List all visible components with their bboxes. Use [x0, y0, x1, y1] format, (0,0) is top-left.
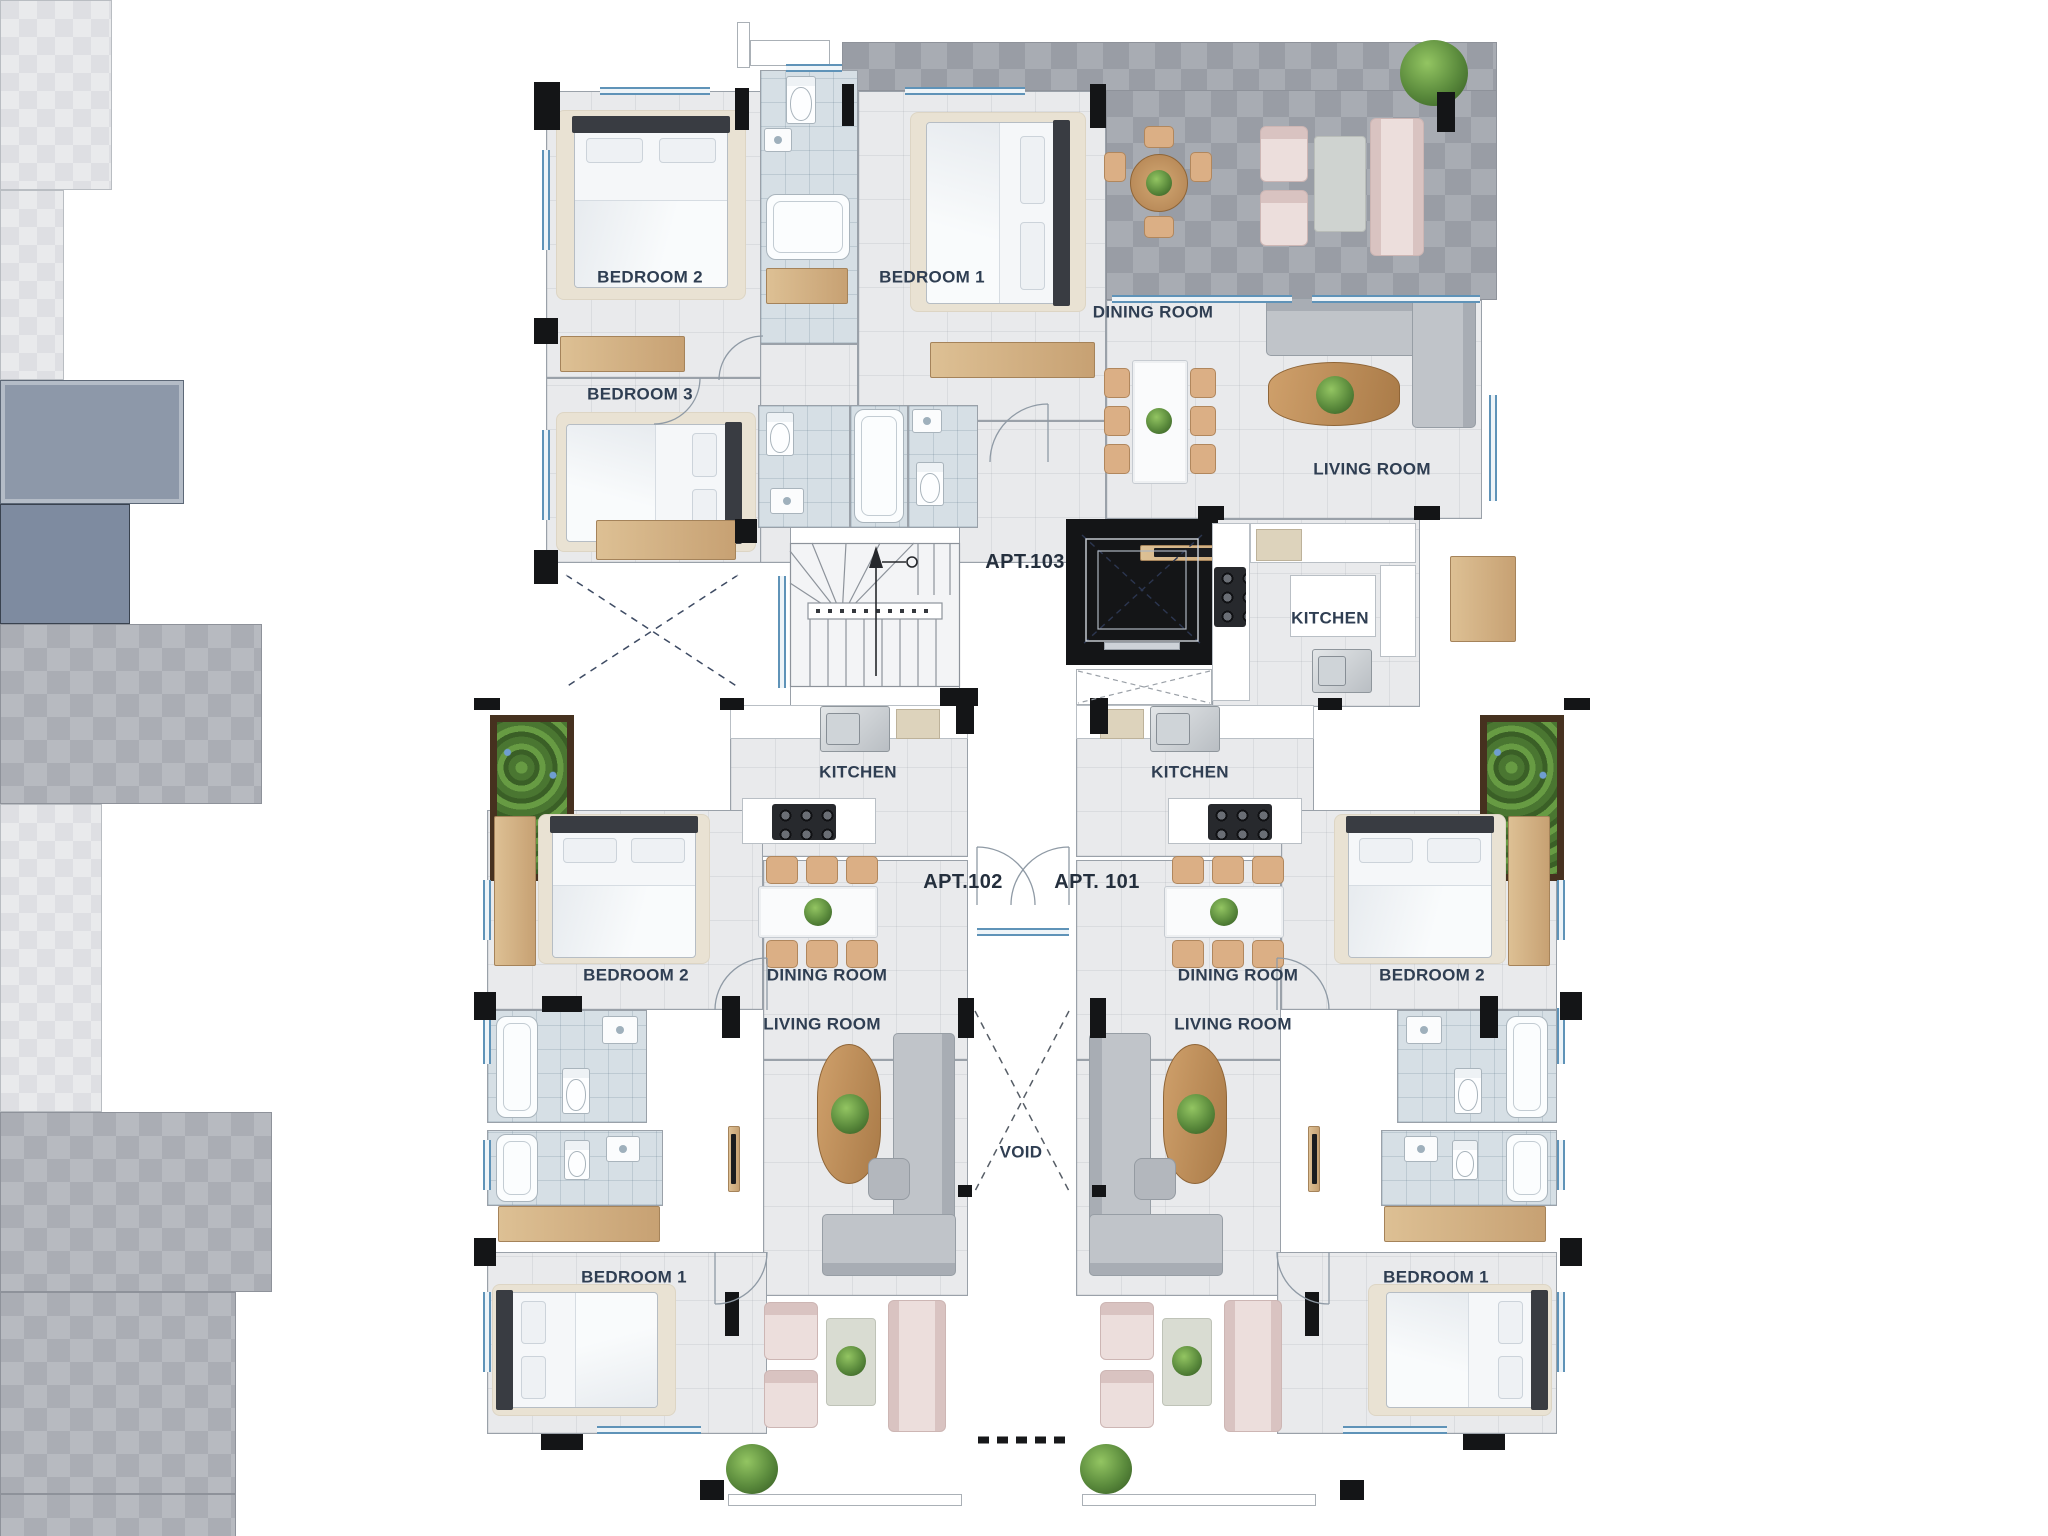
balcony-apt101	[0, 1494, 236, 1536]
wall-column	[700, 1480, 724, 1500]
label-bedroom1-apt103: BEDROOM 1	[879, 269, 985, 286]
pillow	[1498, 1356, 1523, 1399]
plant-icon	[1146, 170, 1172, 196]
wall-column	[534, 318, 558, 344]
wall-column	[1090, 998, 1106, 1038]
label-kitchen-apt103: KITCHEN	[1291, 610, 1369, 627]
label-living-apt101: LIVING ROOM	[1174, 1016, 1292, 1033]
dresser-bedroom2-apt103	[560, 336, 685, 372]
bush-icon	[726, 1444, 778, 1494]
wall-column	[1090, 84, 1106, 128]
label-unit-apt102: APT.102	[923, 872, 1003, 892]
pillow	[1498, 1301, 1523, 1344]
ottoman	[868, 1158, 910, 1200]
sink-icon	[770, 488, 804, 514]
wall-column	[720, 698, 744, 710]
plant-icon	[804, 898, 832, 926]
shelf-apt101	[1384, 1206, 1546, 1242]
kitchen-cabinet	[896, 709, 940, 739]
bush-icon	[1400, 40, 1468, 106]
floor-plan: BEDROOM 2 BEDROOM 1 BEDROOM 3 DINING ROO…	[0, 0, 2048, 1536]
wardrobe-bedroom2-apt102	[494, 816, 536, 966]
kitchen-counter	[1380, 565, 1416, 657]
dining-chair	[766, 940, 798, 968]
bed-duvet	[553, 885, 695, 957]
wall-column	[725, 1292, 739, 1336]
terrace-armchair	[1260, 190, 1308, 246]
pillow	[1020, 136, 1045, 204]
toilet-icon	[766, 412, 794, 456]
bed-headboard	[1346, 816, 1494, 833]
balcony-parapet-apt101	[1082, 1494, 1316, 1506]
label-bedroom2-apt103: BEDROOM 2	[597, 269, 703, 286]
wall-column	[1480, 996, 1498, 1038]
terrace-tiles-apt101	[0, 1112, 272, 1292]
balcony-armchair	[764, 1370, 818, 1428]
wall-column	[1437, 92, 1455, 132]
toilet-icon	[1454, 1068, 1482, 1114]
dining-chair	[1104, 444, 1130, 474]
pillow	[521, 1301, 546, 1344]
dining-chair	[806, 940, 838, 968]
dining-chair	[806, 856, 838, 884]
toilet-icon	[916, 462, 944, 506]
plant-icon	[1146, 408, 1172, 434]
ottoman	[1134, 1158, 1176, 1200]
terrace-armchair	[1260, 126, 1308, 182]
pillow	[586, 138, 644, 163]
toilet-icon	[562, 1068, 590, 1114]
window	[1557, 1140, 1565, 1190]
window	[1557, 1292, 1565, 1372]
elevator-door	[1104, 642, 1180, 650]
pillow	[659, 138, 717, 163]
window	[1312, 295, 1480, 303]
window	[542, 430, 550, 520]
sink-icon	[606, 1136, 640, 1162]
terrace-tiles-top-strip	[842, 42, 1497, 91]
wall-column	[958, 998, 974, 1038]
window	[778, 576, 786, 688]
toilet-icon	[786, 76, 816, 124]
terrace-sofa	[1370, 118, 1424, 256]
ledge-top	[750, 40, 830, 66]
plant-icon	[1172, 1346, 1202, 1376]
pillow	[1359, 838, 1413, 863]
sink-icon	[912, 409, 942, 433]
sofa-living-apt101	[1089, 1214, 1223, 1276]
ledge-top-left	[737, 22, 750, 68]
bed-headboard	[572, 116, 730, 133]
balcony-parapet-apt102	[728, 1494, 962, 1506]
bed-duvet	[1349, 885, 1491, 957]
double-bed-bedroom1-apt101	[1386, 1292, 1544, 1408]
kitchen-cabinet	[1256, 529, 1302, 561]
bathtub-icon	[1506, 1016, 1548, 1118]
sink-icon	[1404, 1136, 1438, 1162]
window	[483, 880, 491, 940]
bathtub-icon	[854, 409, 904, 523]
wall-column	[1305, 1292, 1319, 1336]
bed-headboard	[496, 1290, 513, 1410]
bush-icon	[1080, 1444, 1132, 1494]
dining-chair	[1212, 940, 1244, 968]
bed-duvet	[1387, 1293, 1469, 1407]
wall-column	[474, 1238, 496, 1266]
dining-chair	[1212, 856, 1244, 884]
wall-column	[1092, 1185, 1106, 1197]
sofa-living-apt103	[1412, 298, 1476, 428]
corridor-kitchen-side	[0, 190, 64, 380]
label-living-apt103: LIVING ROOM	[1313, 461, 1431, 478]
kitchen-sink-icon	[820, 706, 890, 752]
label-living-apt102: LIVING ROOM	[763, 1016, 881, 1033]
dresser-bedroom1-apt103	[930, 342, 1095, 378]
label-bedroom2-apt101: BEDROOM 2	[1379, 967, 1485, 984]
toilet-icon	[1452, 1140, 1478, 1180]
terrace-chair	[1144, 216, 1174, 238]
balcony-armchair	[1100, 1370, 1154, 1428]
tv-screen-icon	[1312, 1134, 1317, 1184]
window	[977, 928, 1069, 936]
double-bed-bedroom2-apt102	[552, 820, 696, 958]
dining-chair	[846, 856, 878, 884]
bed-duvet	[575, 1293, 657, 1407]
plant-icon	[1177, 1094, 1215, 1134]
dresser-bedroom3-apt103	[596, 520, 736, 560]
corridor-core	[0, 804, 102, 1112]
dining-chair	[766, 856, 798, 884]
stove-icon	[1208, 804, 1272, 840]
bathtub-icon	[496, 1134, 538, 1202]
wall-column	[474, 698, 500, 710]
terrace-tiles-apt102	[0, 624, 262, 804]
corridor-apt103	[0, 0, 112, 190]
double-bed-bedroom1-apt102	[500, 1292, 658, 1408]
wall-column	[958, 1185, 972, 1197]
dining-chair	[846, 940, 878, 968]
label-dining-apt102: DINING ROOM	[767, 967, 887, 984]
label-unit-apt101: APT. 101	[1054, 872, 1139, 892]
window	[1489, 395, 1497, 501]
window	[786, 64, 842, 72]
bathtub-icon	[1506, 1134, 1548, 1202]
balcony-sofa	[1224, 1300, 1282, 1432]
label-bedroom2-apt102: BEDROOM 2	[583, 967, 689, 984]
double-bed-bedroom2-apt103	[574, 120, 728, 288]
dining-chair	[1190, 406, 1216, 436]
sofa-living-apt102	[822, 1214, 956, 1276]
label-dining-apt101: DINING ROOM	[1178, 967, 1298, 984]
label-unit-apt103: APT.103	[985, 552, 1065, 572]
balcony-armchair	[764, 1302, 818, 1360]
double-bed-bedroom2-apt101	[1348, 820, 1492, 958]
balcony-sofa	[888, 1300, 946, 1432]
wall-column	[735, 88, 749, 130]
wall-column	[1318, 698, 1342, 710]
wall-column	[474, 992, 496, 1020]
sink-icon	[1406, 1016, 1442, 1044]
terrace-chair	[1144, 126, 1174, 148]
pillow	[1020, 222, 1045, 290]
bathtub-icon	[766, 194, 850, 260]
dining-chair	[1190, 444, 1216, 474]
bathtub-icon	[496, 1016, 538, 1118]
window	[1557, 880, 1565, 940]
dining-chair	[1172, 940, 1204, 968]
dining-chair	[1104, 406, 1130, 436]
pillow	[563, 838, 617, 863]
window	[483, 1292, 491, 1372]
sink-icon	[602, 1016, 638, 1044]
bed-headboard	[550, 816, 698, 833]
window	[597, 1426, 701, 1434]
window	[542, 150, 550, 250]
bath-shelf	[766, 268, 848, 304]
wardrobe-bedroom2-apt101	[1508, 816, 1550, 966]
plant-icon	[831, 1094, 869, 1134]
tv-screen-icon	[731, 1134, 736, 1184]
label-void: VOID	[1000, 1144, 1043, 1161]
window	[905, 87, 1025, 95]
label-kitchen-apt102: KITCHEN	[819, 764, 897, 781]
pillow	[631, 838, 685, 863]
wall-column	[541, 1434, 583, 1450]
wall-column	[534, 82, 560, 130]
kitchen-sink-icon	[1150, 706, 1220, 752]
kitchen-sink-icon	[1312, 649, 1372, 693]
plant-icon	[836, 1346, 866, 1376]
wall-column	[1564, 698, 1590, 710]
window	[600, 87, 710, 95]
terrace-chair	[1190, 152, 1212, 182]
balcony-apt102	[0, 1292, 236, 1494]
stove-icon	[772, 804, 836, 840]
window	[483, 1140, 491, 1190]
stairwell-area	[790, 519, 960, 707]
pillow	[1427, 838, 1481, 863]
dining-chair	[1252, 856, 1284, 884]
dining-chair	[1190, 368, 1216, 398]
wall-column	[735, 519, 757, 543]
kitchen-island	[1290, 575, 1376, 637]
shelf-apt102	[498, 1206, 660, 1242]
elevator-cab	[0, 504, 130, 624]
pillow	[692, 433, 717, 477]
toilet-icon	[564, 1140, 590, 1180]
shaft-left	[0, 380, 184, 504]
label-bedroom1-apt102: BEDROOM 1	[581, 1269, 687, 1286]
balcony-armchair	[1100, 1302, 1154, 1360]
wall-column	[1090, 698, 1108, 734]
wall-column	[542, 996, 582, 1012]
wall-column	[534, 550, 558, 584]
closet-apt103	[1450, 556, 1516, 642]
plant-icon	[1210, 898, 1238, 926]
terrace-rug	[1314, 136, 1366, 232]
bed-headboard	[1531, 1290, 1548, 1410]
stove-icon	[1214, 567, 1246, 627]
wall-column	[1198, 506, 1224, 520]
dining-chair	[1252, 940, 1284, 968]
label-kitchen-apt101: KITCHEN	[1151, 764, 1229, 781]
label-dining-apt103: DINING ROOM	[1093, 304, 1213, 321]
terrace-chair	[1104, 152, 1126, 182]
sink-icon	[764, 128, 792, 152]
dining-chair	[1104, 368, 1130, 398]
wall-column	[1560, 1238, 1582, 1266]
bed-headboard	[1053, 120, 1070, 306]
wall-column	[956, 698, 974, 734]
wall-column	[842, 84, 854, 126]
wall-column	[1560, 992, 1582, 1020]
plant-icon	[1316, 376, 1354, 414]
dining-chair	[1172, 856, 1204, 884]
label-bedroom3-apt103: BEDROOM 3	[587, 386, 693, 403]
window	[1343, 1426, 1447, 1434]
wall-column	[722, 996, 740, 1038]
label-bedroom1-apt101: BEDROOM 1	[1383, 1269, 1489, 1286]
wall-column	[1463, 1434, 1505, 1450]
wall-column	[1414, 506, 1440, 520]
pillow	[521, 1356, 546, 1399]
wall-column	[1340, 1480, 1364, 1500]
